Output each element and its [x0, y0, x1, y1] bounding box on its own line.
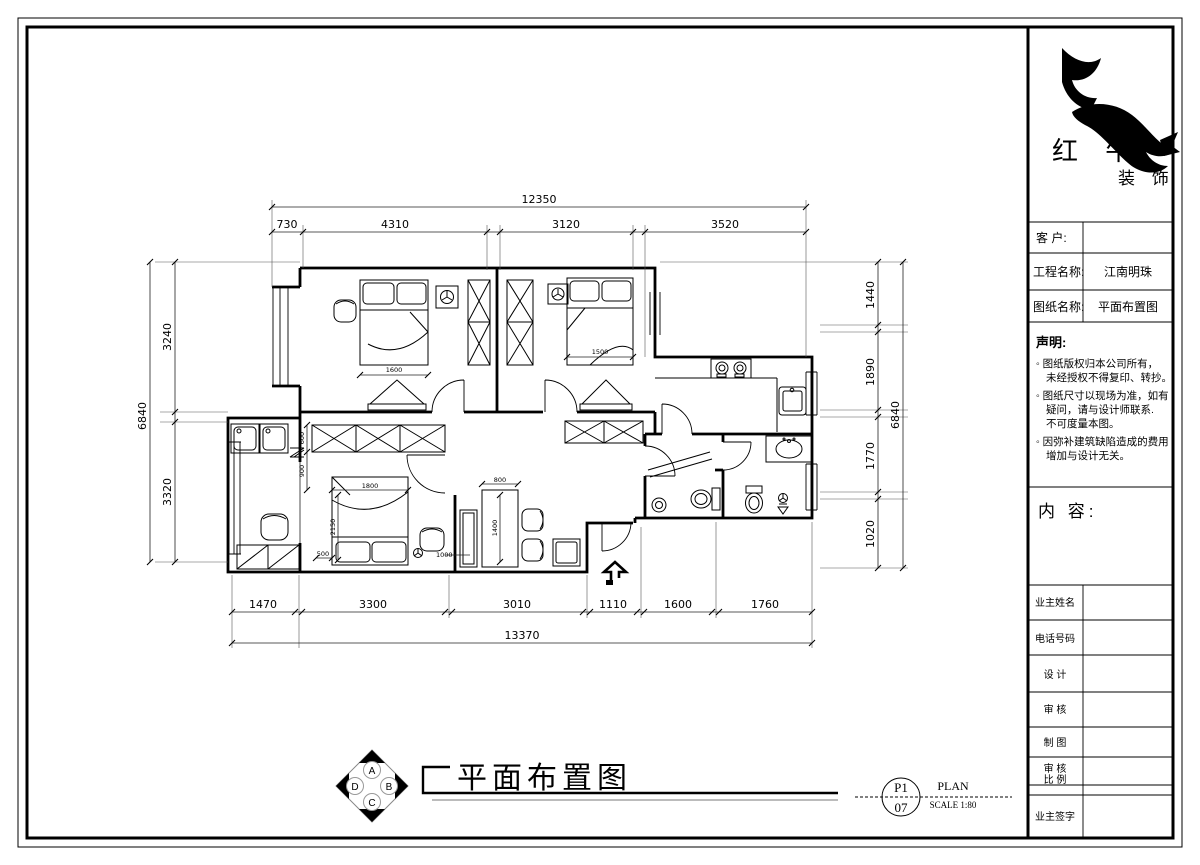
- dining-chair-2: [522, 539, 543, 561]
- svg-text:6840: 6840: [136, 402, 149, 430]
- svg-text:疑问，请与设计师联系.: 疑问，请与设计师联系.: [1046, 403, 1154, 416]
- svg-text:3520: 3520: [711, 218, 739, 231]
- drawing-value: 平面布置图: [1098, 300, 1158, 314]
- svg-text:3300: 3300: [359, 598, 387, 611]
- washer-1: [231, 424, 259, 453]
- owner-name-label: 业主姓名: [1035, 596, 1075, 609]
- washer-2: [260, 424, 288, 453]
- page-title: 平面布置图: [457, 762, 632, 795]
- shower-screen: [648, 452, 712, 477]
- bedroom-2: [507, 278, 633, 410]
- svg-text:SCALE 1:80: SCALE 1:80: [930, 800, 977, 810]
- check-label: 审 核: [1044, 703, 1067, 716]
- svg-text:◦ 因弥补建筑缺陷造成的费用: ◦ 因弥补建筑缺陷造成的费用: [1036, 435, 1169, 448]
- project-label: 工程名称:: [1033, 264, 1084, 279]
- wardrobe-b: [507, 280, 533, 365]
- svg-text:B: B: [386, 782, 393, 793]
- svg-text:D: D: [351, 782, 358, 793]
- phone-label: 电话号码: [1035, 632, 1075, 645]
- svg-text:1110: 1110: [599, 598, 627, 611]
- bathroom-2: [746, 436, 813, 514]
- svg-text:1770: 1770: [864, 442, 877, 470]
- shower-icon: [778, 493, 788, 514]
- design-label: 设 计: [1044, 668, 1067, 681]
- svg-text:1600: 1600: [664, 598, 692, 611]
- svg-text:1890: 1890: [864, 358, 877, 386]
- svg-text:1760: 1760: [751, 598, 779, 611]
- kitchen-sink: [779, 387, 806, 415]
- balcony: [231, 424, 299, 569]
- svg-text:900: 900: [298, 465, 306, 477]
- side-stool: [553, 539, 580, 566]
- stove: [711, 359, 751, 378]
- check2-label: 审 核: [1044, 762, 1067, 775]
- svg-text:未经授权不得复印、转抄。: 未经授权不得复印、转抄。: [1046, 371, 1172, 384]
- drawing-sheet: 12350 730 4310 3120 3520 13370 1470 3300…: [0, 0, 1200, 865]
- statement-title: 声明:: [1035, 335, 1066, 350]
- svg-text:1800: 1800: [362, 482, 379, 490]
- bedroom-1: [334, 280, 490, 410]
- dining-chair-1: [522, 509, 543, 531]
- floor-plan: 12350 730 4310 3120 3520 13370 1470 3300…: [136, 193, 908, 648]
- toilet-1: [691, 488, 720, 510]
- svg-text:2150: 2150: [329, 519, 337, 536]
- wardrobe-a: [468, 280, 490, 365]
- svg-text:730: 730: [277, 218, 298, 231]
- ceiling-fan-icon: [436, 286, 458, 308]
- vanity-basin: [766, 436, 812, 462]
- walls: [228, 268, 812, 572]
- bedside-stool-1: [334, 300, 356, 322]
- svg-text:1500: 1500: [592, 348, 609, 356]
- chair-bed3: [420, 528, 444, 551]
- svg-text:1470: 1470: [249, 598, 277, 611]
- svg-text:1440: 1440: [864, 281, 877, 309]
- drawing-label: 图纸名称:: [1033, 299, 1084, 314]
- svg-text:不可度量本图。: 不可度量本图。: [1046, 417, 1120, 430]
- toilet-2: [746, 486, 763, 513]
- counter: [655, 378, 777, 432]
- dim-top-total: 12350: [522, 193, 557, 206]
- tv-2: [580, 380, 632, 410]
- svg-text:6840: 6840: [889, 401, 902, 429]
- svg-text:800: 800: [494, 476, 506, 484]
- sheet-stamp: P1 07 PLAN SCALE 1:80: [855, 778, 1012, 816]
- dimension-lines: [147, 204, 906, 646]
- bathroom-1: [648, 452, 720, 512]
- company-name: 红 牛: [1052, 136, 1141, 166]
- light-icon: [414, 549, 423, 558]
- dining: [460, 490, 580, 567]
- svg-text:P1: P1: [894, 780, 908, 795]
- scale-row-label: 比 例: [1044, 773, 1067, 786]
- svg-text:1600: 1600: [386, 366, 403, 374]
- kitchen: [655, 359, 806, 432]
- svg-text:3010: 3010: [503, 598, 531, 611]
- entry-arrow-icon: [604, 562, 626, 585]
- basin-1: [652, 498, 666, 512]
- company-sub: 装 饰: [1118, 169, 1175, 188]
- svg-text:PLAN: PLAN: [937, 779, 969, 793]
- bed-1: [360, 280, 428, 365]
- balcony-chair: [261, 514, 288, 540]
- wardrobe-strip-bed3: [312, 425, 445, 452]
- svg-text:4310: 4310: [381, 218, 409, 231]
- svg-text:C: C: [368, 798, 375, 809]
- svg-text:3240: 3240: [161, 323, 174, 351]
- svg-text:500: 500: [317, 550, 329, 558]
- svg-text:1000: 1000: [436, 551, 453, 559]
- dining-cabinet: [460, 510, 477, 567]
- owner-sign-label: 业主签字: [1035, 810, 1075, 823]
- content-label: 内 容:: [1038, 502, 1097, 521]
- ceiling-fan-icon: [548, 284, 568, 304]
- svg-text:增加与设计无关。: 增加与设计无关。: [1046, 449, 1130, 462]
- project-value: 江南明珠: [1104, 264, 1152, 279]
- hall-cabinet-strip: [565, 421, 643, 443]
- svg-text:◦ 图纸尺寸以现场为准，如有: ◦ 图纸尺寸以现场为准，如有: [1036, 389, 1169, 402]
- svg-text:07: 07: [895, 800, 909, 815]
- svg-text:3120: 3120: [552, 218, 580, 231]
- svg-text:600: 600: [298, 432, 306, 444]
- dim-bottom-total: 13370: [505, 629, 540, 642]
- hall-cabinets: [312, 421, 643, 452]
- svg-text:A: A: [369, 766, 376, 777]
- svg-text:3320: 3320: [161, 478, 174, 506]
- balcony-desk: [237, 545, 299, 569]
- svg-text:◦ 图纸版权归本公司所有，: ◦ 图纸版权归本公司所有，: [1036, 357, 1158, 370]
- title-block: 红 牛 装 饰 客 户: 工程名称: 江南明珠 图纸名称: 平面布置图 声明: …: [1028, 48, 1180, 838]
- svg-text:1400: 1400: [491, 520, 499, 537]
- tv-1: [368, 380, 426, 410]
- svg-text:1020: 1020: [864, 520, 877, 548]
- compass-icon: A B C D: [336, 750, 408, 822]
- draft-label: 制 图: [1044, 736, 1067, 749]
- page-border: [18, 18, 1182, 847]
- customer-label: 客 户:: [1036, 230, 1067, 245]
- drawing-title: 平面布置图: [423, 762, 838, 800]
